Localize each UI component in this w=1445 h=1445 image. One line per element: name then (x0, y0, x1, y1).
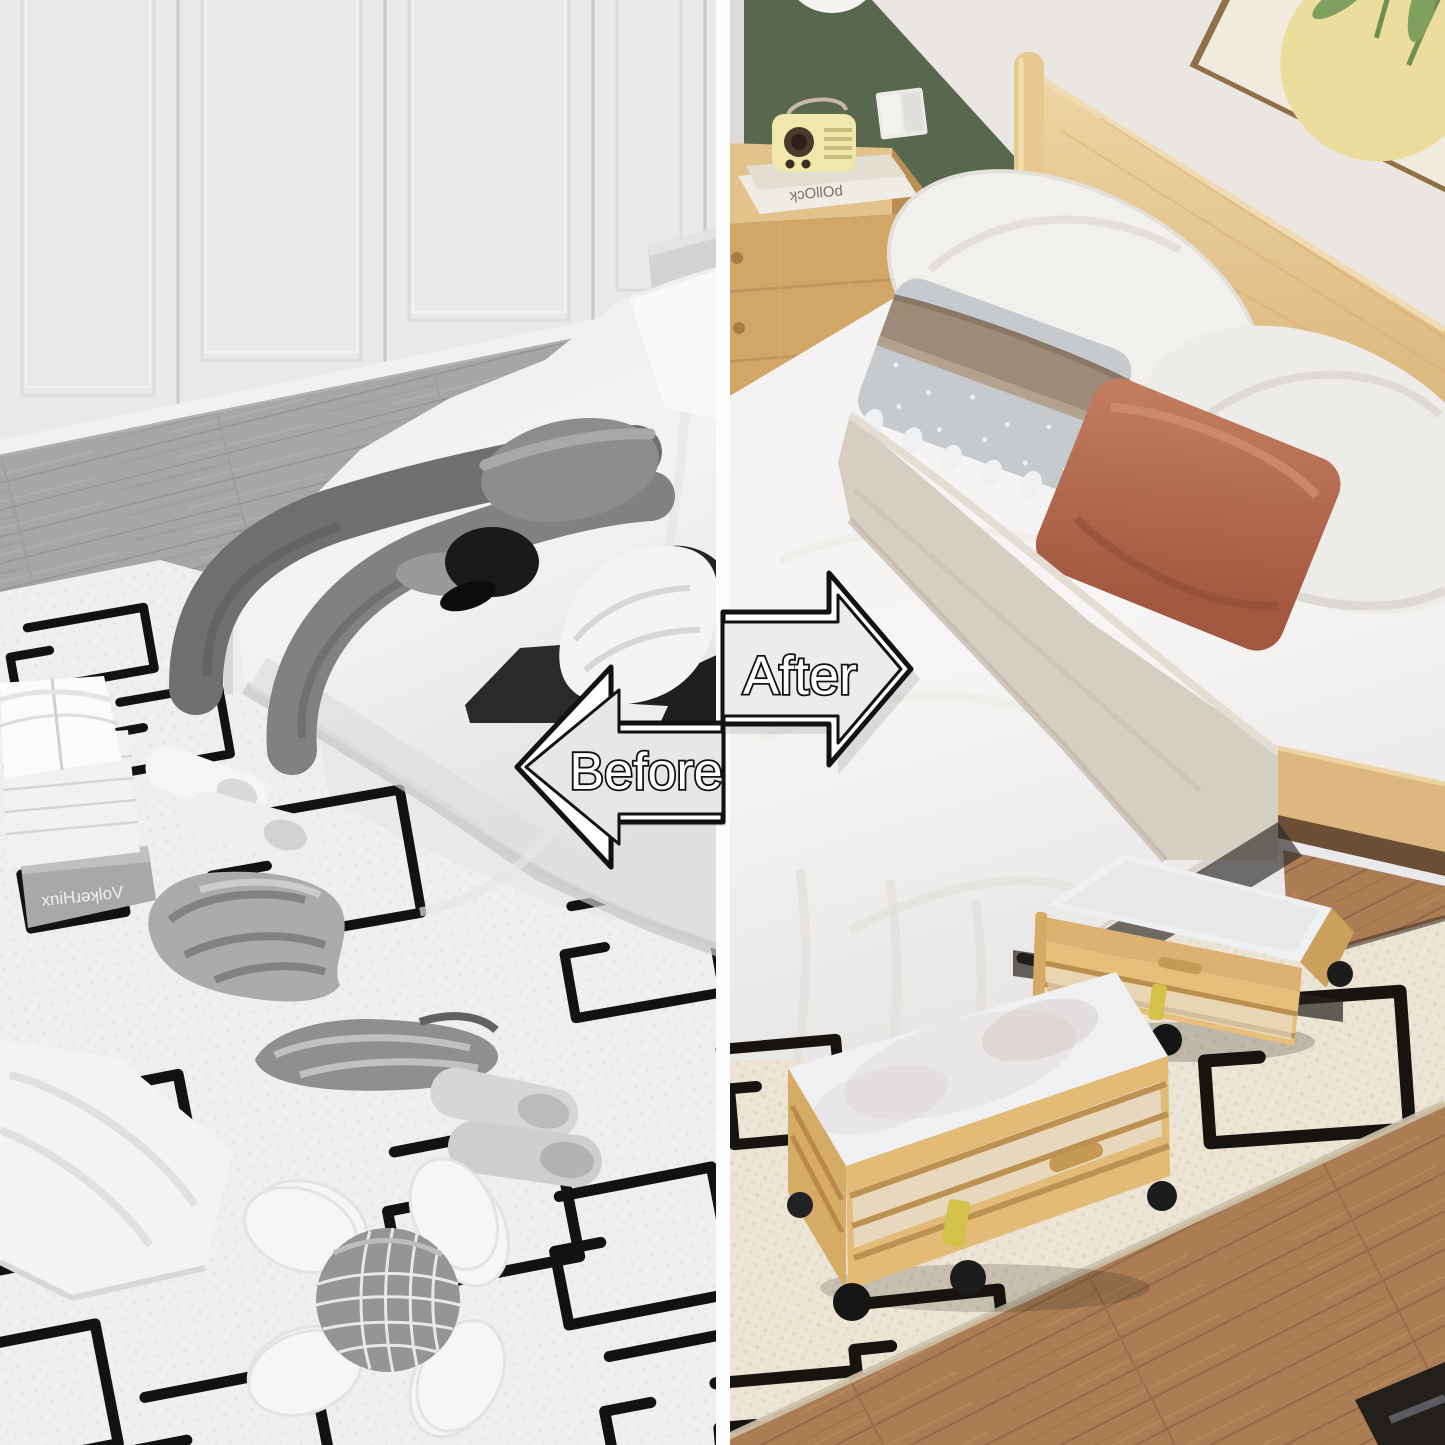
svg-text:After: After (743, 646, 857, 706)
svg-text:Before: Before (569, 743, 722, 801)
